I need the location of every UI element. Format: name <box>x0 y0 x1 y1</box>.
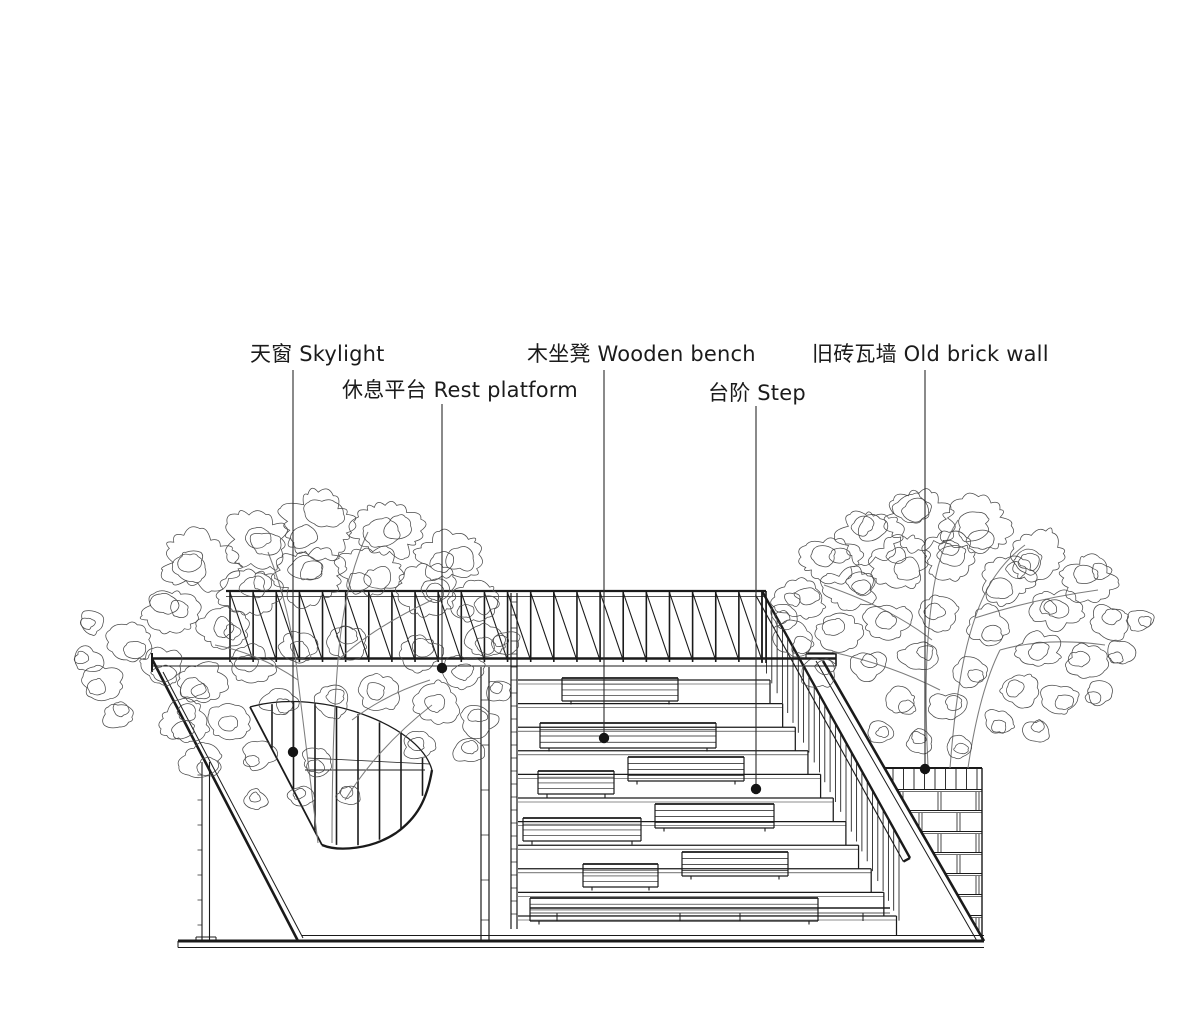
label-skylight: 天窗 Skylight <box>250 341 385 367</box>
label-wooden-bench: 木坐凳 Wooden bench <box>527 341 756 367</box>
label-rest-platform: 休息平台 Rest platform <box>342 377 578 403</box>
label-old-brick-wall: 旧砖瓦墙 Old brick wall <box>812 341 1049 367</box>
anchor-dot-step <box>751 784 761 794</box>
label-step: 台阶 Step <box>708 380 806 406</box>
section-drawing <box>0 0 1200 1009</box>
anchor-dot-old-brick-wall <box>920 764 930 774</box>
anchor-dot-wooden-bench <box>599 733 609 743</box>
leader-skylight <box>288 370 298 757</box>
leader-step <box>751 406 761 794</box>
structure-lines <box>152 591 984 948</box>
leader-wooden-bench <box>599 370 609 743</box>
anchor-dot-skylight <box>288 747 298 757</box>
diagram-canvas: 天窗 Skylight 休息平台 Rest platform 木坐凳 Woode… <box>0 0 1200 1009</box>
anchor-dot-rest-platform <box>437 663 447 673</box>
